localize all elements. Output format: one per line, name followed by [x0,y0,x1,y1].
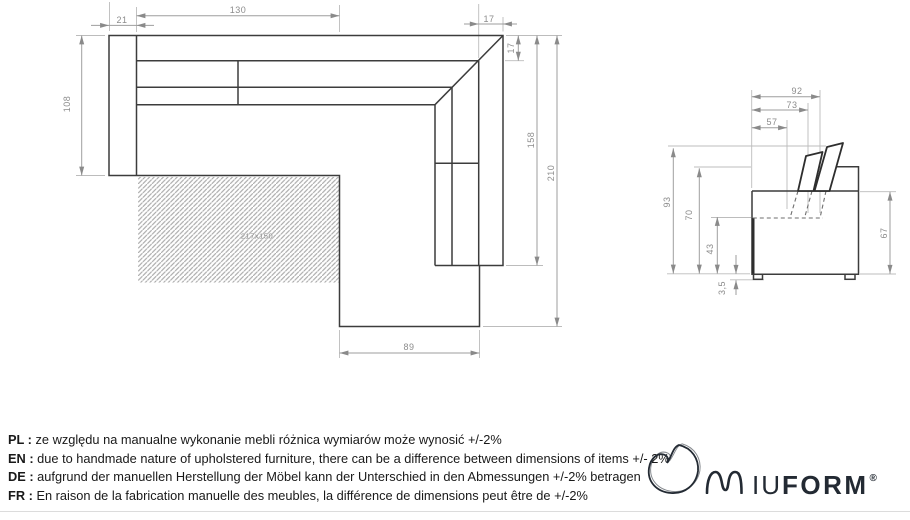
dim-label-108: 108 [62,96,72,113]
dim-label-43: 43 [705,243,715,254]
plan-view [109,36,503,327]
note-fr-label: FR : [8,488,33,503]
sleeping-area-hatch [138,177,339,283]
dim-label-89: 89 [403,342,414,352]
tolerance-notes: PL : ze względu na manualne wykonanie me… [8,431,670,505]
note-pl-label: PL : [8,432,32,447]
side-view [752,143,859,279]
note-pl: PL : ze względu na manualne wykonanie me… [8,431,670,450]
dim-label-17-top: 17 [483,14,494,24]
corner-miter-line [435,36,503,105]
furniture-dimension-sheet: 130 21 17 17 108 158 210 89 217x150 92 7… [0,0,910,520]
sofa-foot [845,274,855,279]
dim-label-3-5: 3,5 [717,281,727,295]
dim-label-21: 21 [116,15,127,25]
dim-label-57: 57 [766,117,777,127]
dim-label-73: 73 [786,100,797,110]
dim-label-17-side: 17 [506,42,516,53]
bean-logo-icon [645,441,703,497]
dim-label-130: 130 [230,5,247,15]
note-en-label: EN : [8,451,34,466]
note-de-text: aufgrund der manuellen Herstellung der M… [37,469,641,484]
note-de-label: DE : [8,469,34,484]
note-de: DE : aufgrund der manuellen Herstellung … [8,468,670,487]
dim-label-210: 210 [546,165,556,182]
note-fr-text: En raison de la fabrication manuelle des… [36,488,587,503]
logo-m-wave-icon [705,468,751,494]
dim-label-67: 67 [879,227,889,238]
adjustable-headrests [798,143,843,191]
logo-text-iu: IU [752,473,782,497]
dim-label-93: 93 [662,196,672,207]
note-fr: FR : En raison de la fabrication manuell… [8,487,670,506]
dim-label-158: 158 [526,132,536,149]
sofa-foot [754,274,763,279]
note-pl-text: ze względu na manualne wykonanie mebli r… [36,432,502,447]
sleeping-area-label: 217x150 [241,232,273,241]
note-en-text: due to handmade nature of upholstered fu… [37,451,670,466]
technical-drawing [0,0,910,430]
logo-text-form: FORM [782,473,869,497]
dim-label-70: 70 [684,209,694,220]
note-en: EN : due to handmade nature of upholster… [8,450,670,469]
registered-mark: ® [870,473,877,484]
hidden-lines [753,191,826,218]
miuform-logo: IUFORM ® [645,441,877,497]
dim-label-92: 92 [791,86,802,96]
footer-divider [0,511,910,512]
